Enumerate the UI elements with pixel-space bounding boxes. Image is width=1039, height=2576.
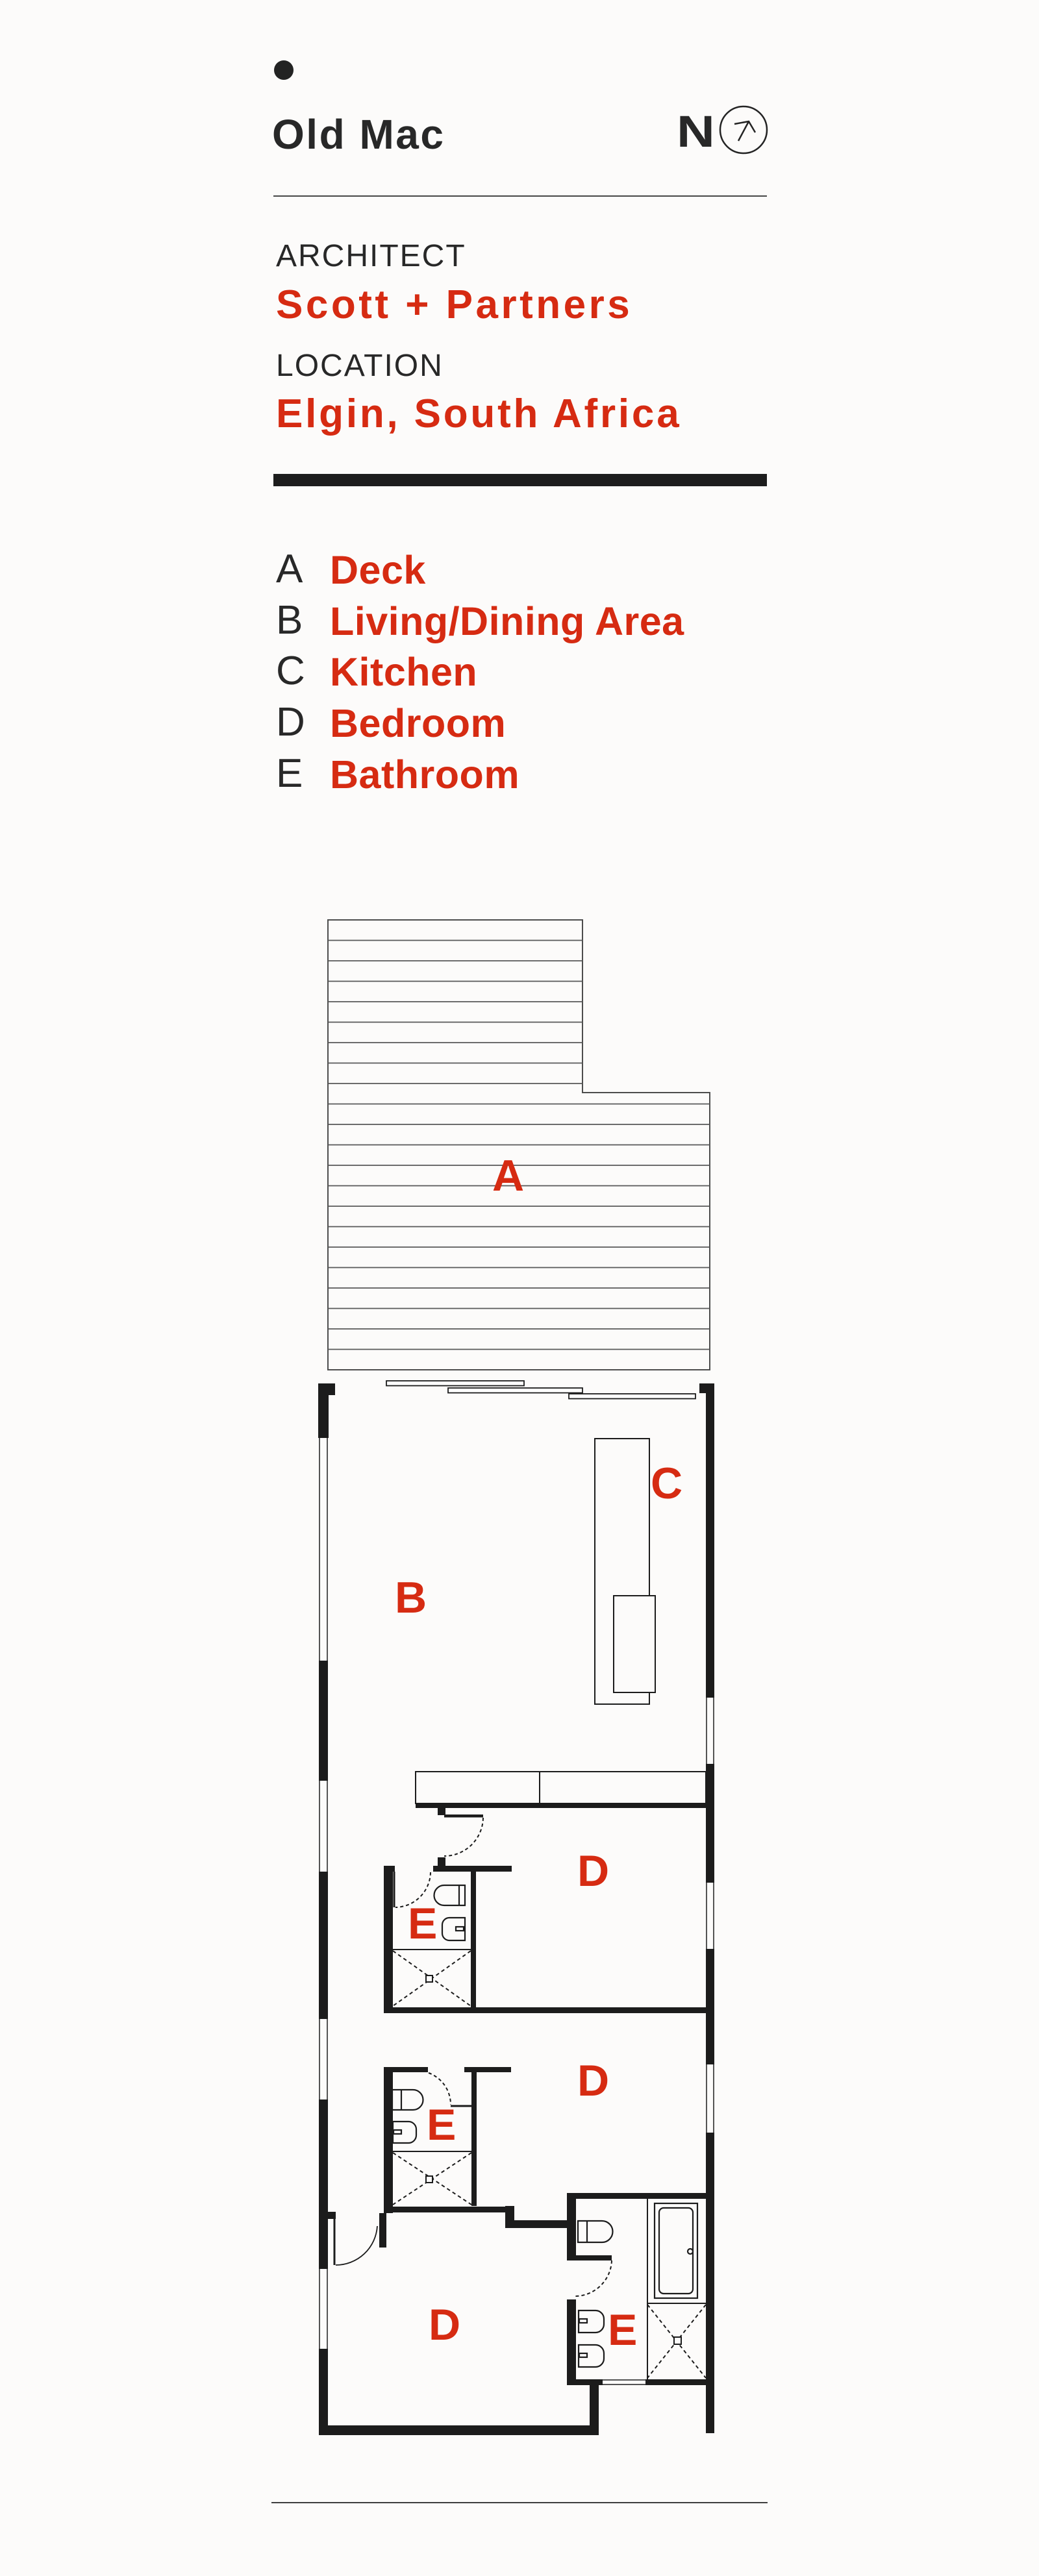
svg-text:E: E <box>427 2100 456 2149</box>
svg-text:A: A <box>492 1151 524 1200</box>
svg-text:C: C <box>651 1459 682 1508</box>
svg-text:D: D <box>577 2056 609 2105</box>
svg-text:E: E <box>408 1899 437 1948</box>
svg-text:E: E <box>608 2305 637 2355</box>
svg-text:B: B <box>395 1573 427 1622</box>
svg-text:D: D <box>577 1846 609 1896</box>
svg-text:D: D <box>429 2300 460 2349</box>
